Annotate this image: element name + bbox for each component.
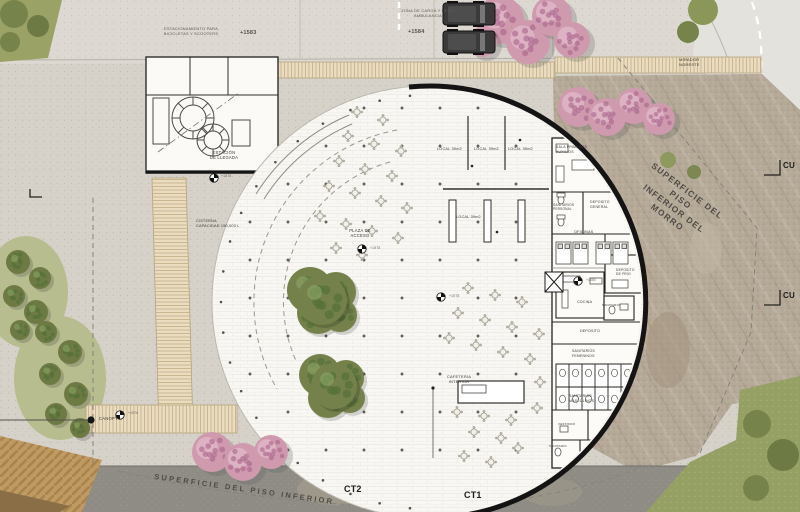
site-plan: ESTACIONAMIENTO PARA BICICLETAS Y SCOOTE… [0,0,800,512]
elevator-symbol [545,272,563,292]
site-plan-drawing [0,0,800,512]
funicular-station [146,57,278,173]
cafeteria-counter [458,381,524,403]
